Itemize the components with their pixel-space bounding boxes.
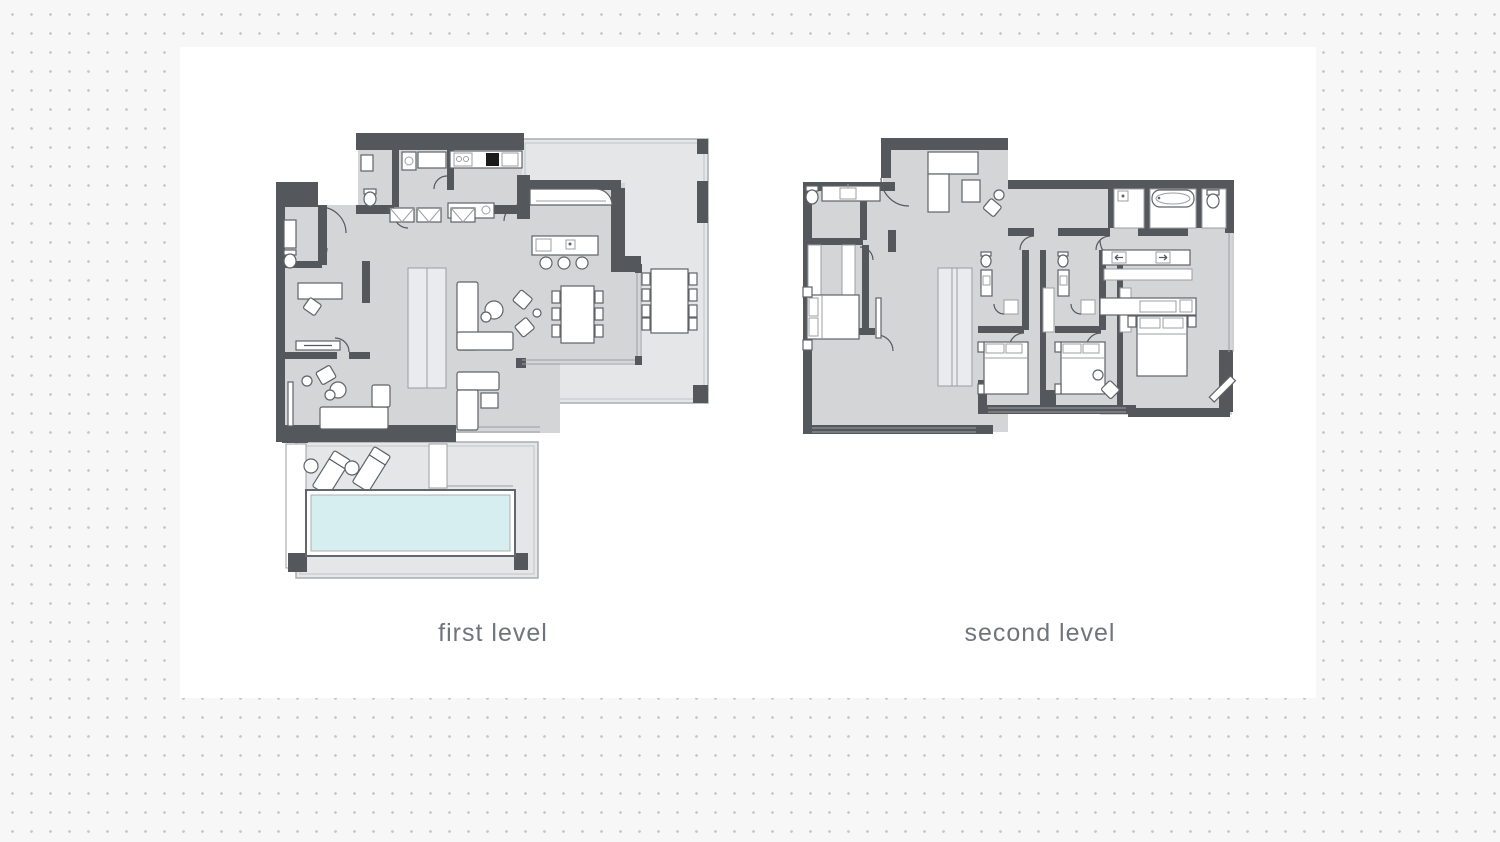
side-table bbox=[304, 459, 318, 473]
bathtub-icon bbox=[1152, 190, 1194, 207]
toilet-icon bbox=[806, 190, 818, 204]
pantry-cabinets bbox=[390, 208, 475, 222]
sink bbox=[361, 155, 373, 171]
floorplan-first-level bbox=[276, 133, 708, 578]
cooktop-icon bbox=[486, 153, 499, 166]
floorplans-canvas bbox=[0, 0, 1500, 842]
toilet-icon bbox=[284, 254, 296, 268]
second-level-label: second level bbox=[918, 616, 1162, 650]
wardrobe-strip bbox=[1104, 269, 1192, 280]
outdoor-dining-table bbox=[642, 269, 697, 333]
first-level-label: first level bbox=[378, 616, 608, 650]
page-background: first level second level bbox=[0, 0, 1500, 842]
floorplan-second-level bbox=[803, 138, 1235, 434]
washer-icon bbox=[402, 152, 416, 170]
kitchen-island bbox=[532, 236, 598, 269]
stairs bbox=[938, 268, 972, 386]
swimming-pool bbox=[306, 490, 515, 556]
stairs bbox=[408, 268, 446, 388]
daybed bbox=[530, 189, 612, 205]
mirror bbox=[876, 298, 881, 338]
toilet-icon bbox=[364, 192, 376, 206]
dining-table bbox=[552, 286, 603, 343]
upper-bathrooms bbox=[1114, 189, 1226, 228]
toilet-icon bbox=[1207, 194, 1219, 208]
sink bbox=[284, 220, 296, 248]
side-table bbox=[345, 461, 359, 475]
pool-deck bbox=[282, 430, 538, 578]
